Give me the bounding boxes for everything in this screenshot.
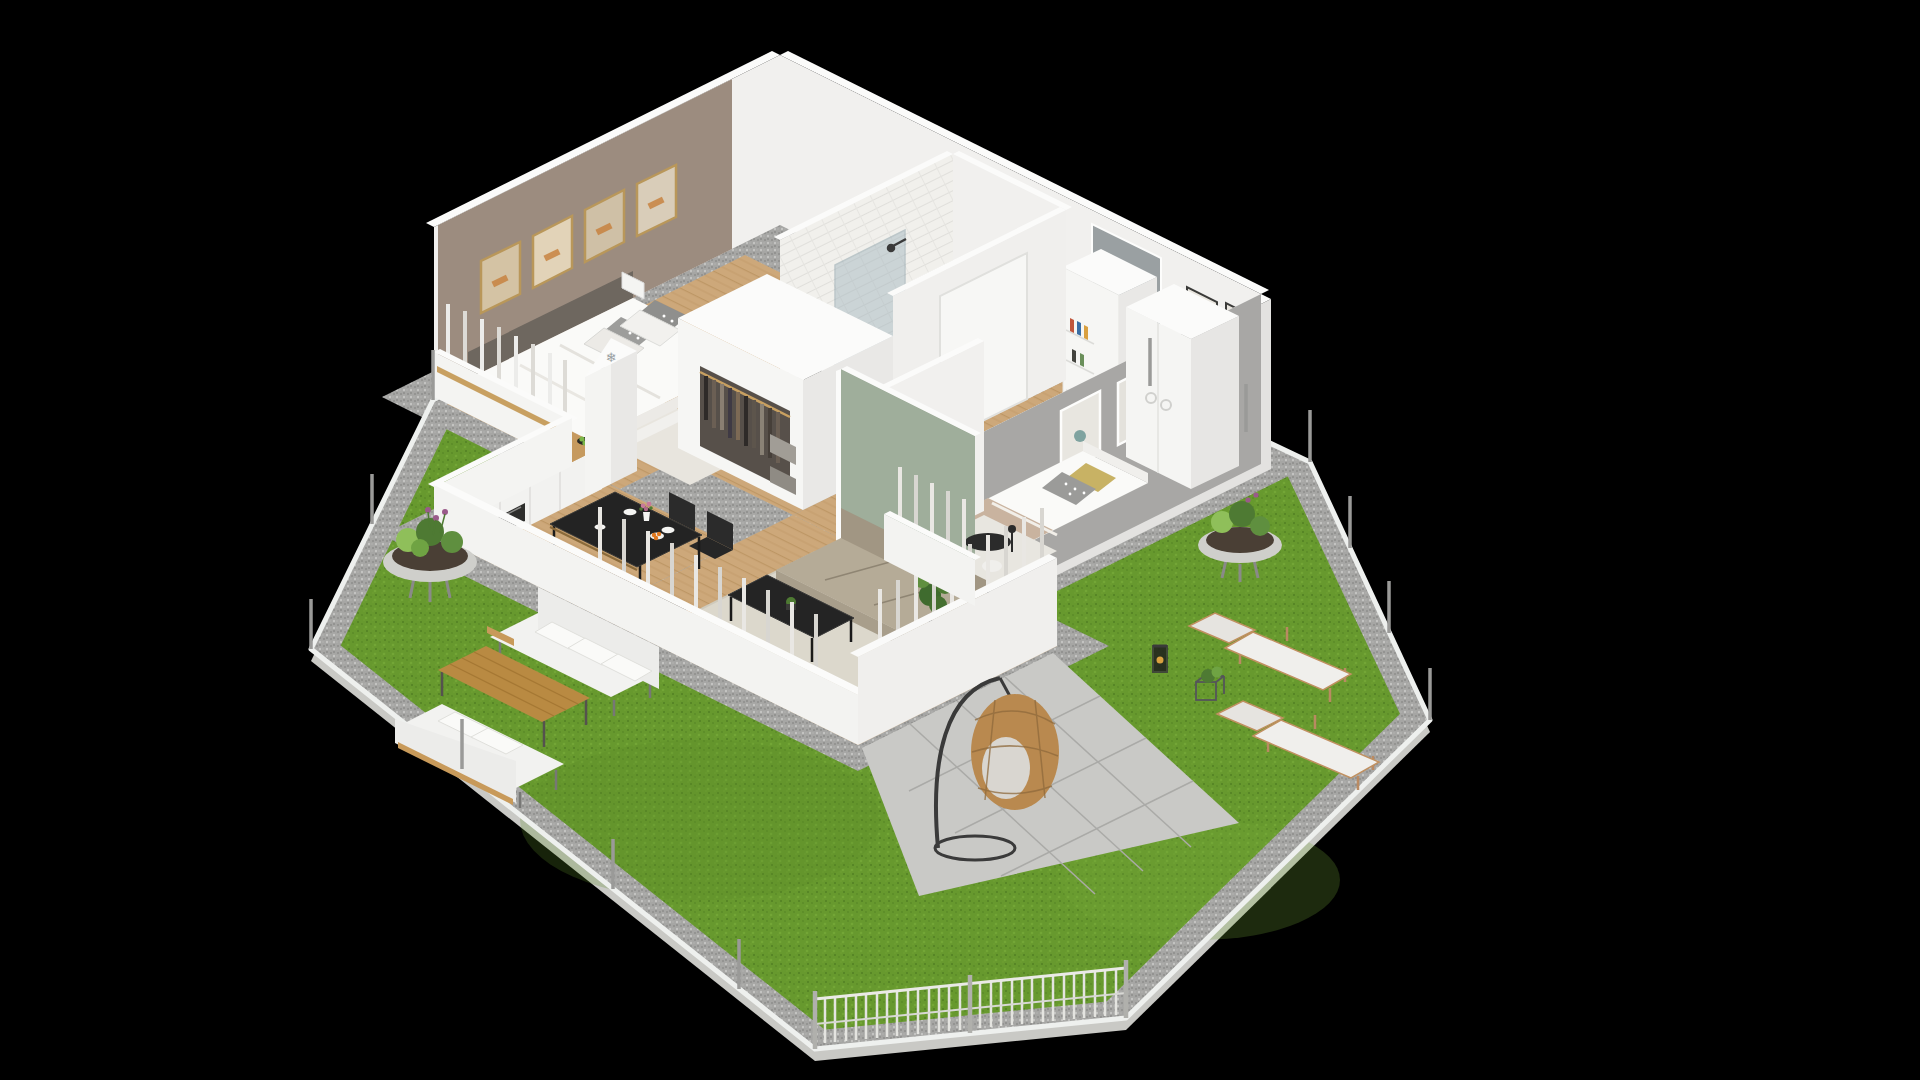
pouf [982, 560, 1002, 572]
isometric-scene: ❄ [0, 0, 1920, 1080]
lawn-shading [520, 740, 880, 900]
snowflake-icon: ❄ [606, 350, 617, 365]
lantern [1153, 646, 1167, 672]
floor-plan-render: ❄ [0, 0, 1920, 1080]
bedroom2-wardrobe [1126, 284, 1239, 489]
sage-wall-jamb [836, 369, 841, 541]
